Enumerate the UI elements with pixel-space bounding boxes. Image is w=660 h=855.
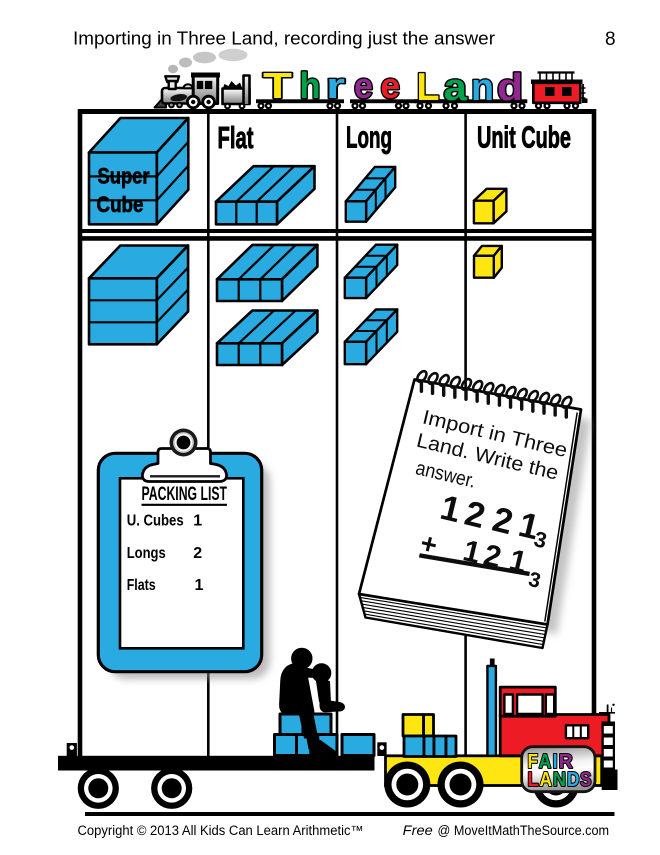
svg-text:d: d [497,67,523,109]
svg-text:2: 2 [193,545,202,562]
svg-text:Super: Super [98,164,150,189]
svg-text:e: e [354,65,373,106]
svg-text:Long: Long [346,120,392,155]
svg-text:h: h [300,65,321,106]
svg-text:Free: Free [403,823,433,838]
svg-text:Flats: Flats [127,577,156,594]
svg-text:Longs: Longs [127,545,166,562]
svg-text:Cube: Cube [97,192,144,217]
svg-text:U. Cubes: U. Cubes [127,513,184,530]
svg-text:Flat: Flat [218,120,254,155]
svg-text:r: r [326,65,345,106]
svg-text:1: 1 [193,513,202,530]
svg-text:N: N [553,769,566,791]
svg-text:Copyright © 2013 All Kids Can: Copyright © 2013 All Kids Can Learn Arit… [78,823,364,838]
svg-text:@ MoveItMathTheSource.com: @ MoveItMathTheSource.com [438,823,610,838]
svg-text:a: a [444,67,468,109]
svg-text:A: A [540,769,553,791]
svg-text:Unit Cube: Unit Cube [477,120,571,155]
svg-text:Importing in Three Land, recor: Importing in Three Land, recording just … [73,28,495,49]
svg-text:PACKING LIST: PACKING LIST [142,484,228,505]
svg-text:L: L [528,769,539,791]
svg-text:1: 1 [195,577,204,594]
svg-text:e: e [381,65,401,106]
svg-text:8: 8 [605,29,616,50]
svg-text:n: n [471,67,494,109]
svg-text:D: D [567,769,580,791]
svg-text:L: L [417,66,440,109]
svg-text:S: S [580,769,592,791]
svg-text:T: T [263,65,292,106]
